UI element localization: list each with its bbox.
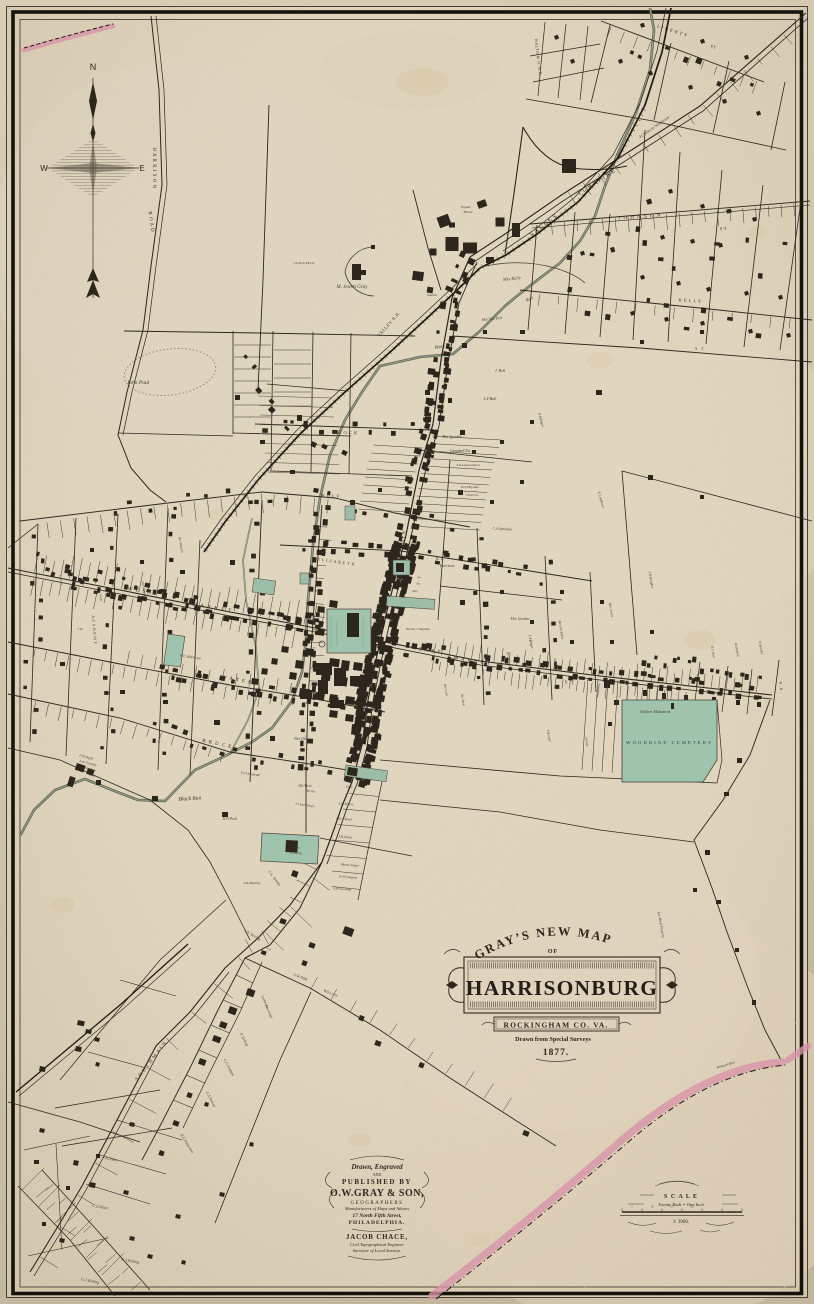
svg-text:T.Ott: T.Ott <box>345 785 353 790</box>
svg-text:Campbell Est: Campbell Est <box>450 449 472 453</box>
svg-text:L.F.Ball: L.F.Ball <box>483 396 498 401</box>
svg-text:ST: ST <box>720 226 729 232</box>
svg-text:M. Jewett Gray: M. Jewett Gray <box>336 285 369 290</box>
svg-text:S C A L E: S C A L E <box>664 1194 698 1200</box>
svg-text:17 North Fifth Street,: 17 North Fifth Street, <box>352 1213 401 1219</box>
svg-text:Manufacturers of Maps and Atla: Manufacturers of Maps and Atlases <box>344 1206 409 1211</box>
svg-text:OF: OF <box>548 949 558 955</box>
svg-text:Wesley Chapman: Wesley Chapman <box>406 627 430 631</box>
svg-text:1877.: 1877. <box>543 1048 569 1058</box>
svg-text:W O O D B I N E C E M E T E: W O O D B I N E C E M E T E R Y <box>626 740 712 745</box>
svg-text:R O C K: R O C K <box>338 430 358 436</box>
svg-text:Surveyor of Local Surveys.: Surveyor of Local Surveys. <box>353 1248 402 1253</box>
svg-text:PUBLISHED BY: PUBLISHED BY <box>342 1178 412 1186</box>
svg-text:PUB.: PUB. <box>291 846 299 850</box>
svg-text:Harrison: Harrison <box>439 563 455 568</box>
svg-text:Civil Topographical Engineer: Civil Topographical Engineer <box>350 1242 404 1247</box>
svg-text:House: House <box>463 210 473 214</box>
svg-text:H A R R I S O N: H A R R I S O N <box>151 147 156 188</box>
svg-text:Soldiers Monument: Soldiers Monument <box>640 710 671 714</box>
svg-text:Twenty Rods = One Inch: Twenty Rods = One Inch <box>658 1202 704 1207</box>
svg-text:Mrs: Mrs <box>411 589 418 593</box>
svg-text:S.R.Moaling: S.R.Moaling <box>244 881 261 885</box>
svg-text:S T: S T <box>695 346 705 352</box>
svg-text:John Paul: John Paul <box>127 380 150 386</box>
svg-text:R.R.: R.R. <box>779 682 784 695</box>
svg-text:T.A.Loewenbach: T.A.Loewenbach <box>456 463 480 467</box>
svg-text:N: N <box>90 62 97 72</box>
svg-text:W: W <box>40 164 48 173</box>
svg-text:W. C.: W. C. <box>436 556 445 561</box>
svg-text:1: 3960.: 1: 3960. <box>673 1220 689 1225</box>
svg-text:J.W.: J.W. <box>77 627 83 631</box>
svg-text:R.R.: R.R. <box>426 287 433 291</box>
svg-text:Mrs Sprinkle: Mrs Sprinkle <box>441 435 462 439</box>
svg-text:R.N.Pool: R.N.Pool <box>222 817 237 821</box>
svg-text:JACOB CHACE,: JACOB CHACE, <box>346 1233 408 1241</box>
svg-text:SCHOOL: SCHOOL <box>290 851 303 856</box>
svg-text:AND: AND <box>373 1172 382 1177</box>
svg-text:Wm Ott: Wm Ott <box>294 737 307 741</box>
svg-text:Engine: Engine <box>460 205 471 209</box>
svg-text:Station: Station <box>427 293 437 297</box>
svg-text:O.W.GRAY & SON,: O.W.GRAY & SON, <box>330 1188 424 1199</box>
svg-text:15: 15 <box>670 1205 674 1209</box>
svg-text:J. Bell: J. Bell <box>495 368 506 373</box>
svg-text:W.S.Hayman: W.S.Hayman <box>461 485 479 489</box>
svg-text:HARRISONBURG: HARRISONBURG <box>466 976 658 1000</box>
svg-text:PHILADELPHIA.: PHILADELPHIA. <box>349 1220 406 1226</box>
svg-text:Drawn from Special Surveys: Drawn from Special Surveys <box>515 1036 591 1043</box>
svg-text:E: E <box>139 164 144 173</box>
svg-text:J.D.Price: J.D.Price <box>465 493 479 497</box>
svg-text:Mrs Gordon: Mrs Gordon <box>510 617 530 621</box>
svg-text:ROCKINGHAM CO. VA.: ROCKINGHAM CO. VA. <box>503 1021 608 1030</box>
svg-text:COLLICELLO: COLLICELLO <box>294 261 315 265</box>
svg-text:20: 20 <box>690 1205 694 1209</box>
svg-text:Drawn, Engraved: Drawn, Engraved <box>350 1163 403 1171</box>
svg-text:10: 10 <box>650 1205 654 1209</box>
